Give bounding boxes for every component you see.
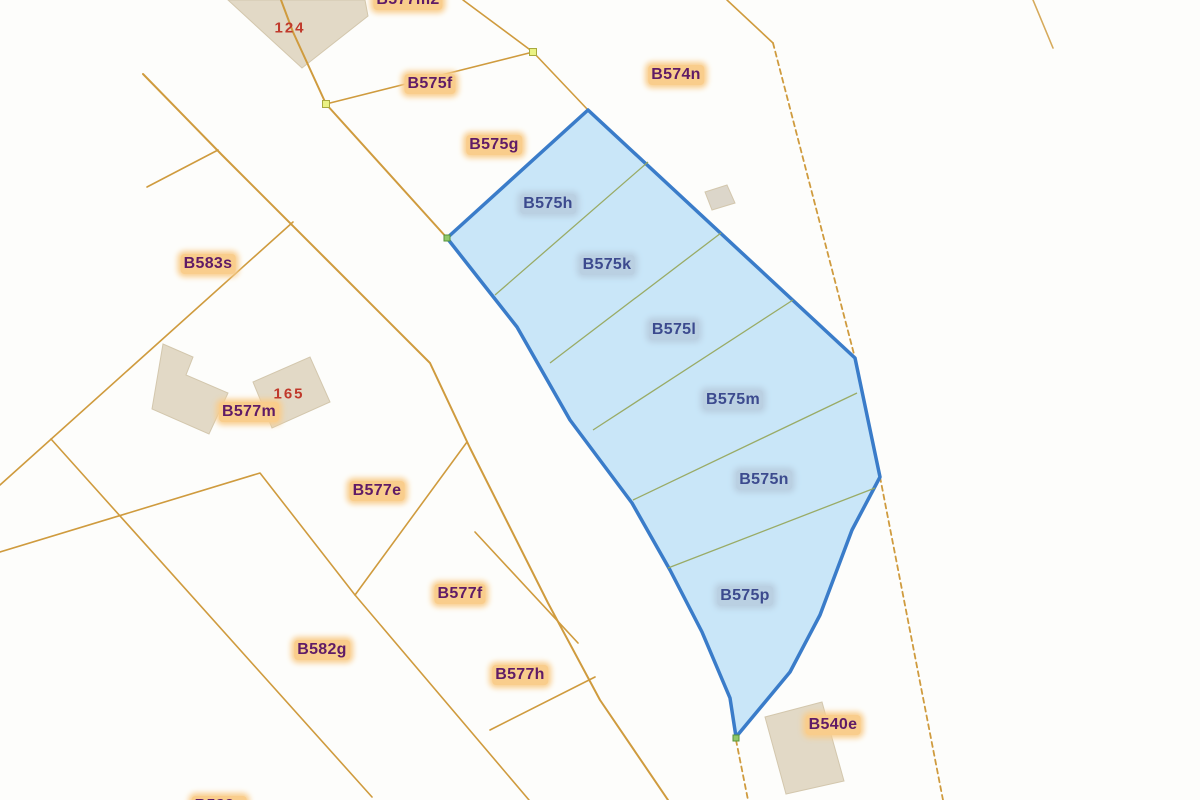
map-layer [0, 0, 1200, 800]
parcel-label-b577m2[interactable]: B577m2 [373, 0, 442, 10]
parcel-label-b583s[interactable]: B583s [181, 254, 236, 274]
parcel-label-b575m[interactable]: B575m [703, 390, 763, 410]
parcel-line-b577e-b577f [355, 442, 467, 595]
parcel-label-b575h[interactable]: B575h [520, 194, 576, 214]
vertex-marker-green [444, 235, 450, 241]
parcel-label-b575l[interactable]: B575l [649, 320, 699, 340]
parcel-label-b575f[interactable]: B575f [404, 74, 455, 94]
parcel-line-topleft-spur [147, 150, 218, 187]
cadastral-map-canvas[interactable]: B577m2 B575f B574n B575g B583s B577m B57… [0, 0, 1200, 800]
building-small-left [152, 344, 228, 434]
house-number-124: 124 [274, 20, 305, 37]
house-number-165: 165 [273, 386, 304, 403]
parcel-line-b582g-b577h [355, 595, 529, 800]
parcel-label-b577m[interactable]: B577m [219, 402, 279, 422]
road-dashed-line-lower-right [880, 477, 943, 800]
parcel-label-b577h[interactable]: B577h [492, 665, 548, 685]
parcel-line-b574n-right-solid [727, 0, 773, 43]
parcel-line-b582g-left [51, 439, 372, 797]
vertex-marker [530, 49, 537, 56]
parcel-label-b577e[interactable]: B577e [350, 481, 405, 501]
parcel-label-b574n[interactable]: B574n [648, 65, 704, 85]
parcel-label-b575n[interactable]: B575n [736, 470, 792, 490]
road-dashed-line-bottom [736, 740, 748, 800]
vertex-marker [323, 101, 330, 108]
parcel-label-b582g[interactable]: B582g [294, 640, 350, 660]
parcel-label-b577f[interactable]: B577f [434, 584, 485, 604]
parcel-line-b577m-b577e [0, 473, 355, 595]
parcel-label-b575p[interactable]: B575p [717, 586, 773, 606]
parcel-label-b582-partial[interactable]: B582e [192, 796, 247, 800]
parcel-line-b575f-top [463, 0, 533, 52]
parcel-label-b540e[interactable]: B540e [806, 715, 861, 735]
vertex-marker-green [733, 735, 739, 741]
building-small-b574n [705, 185, 735, 210]
parcel-line-b577f-b577h [475, 532, 578, 643]
parcel-line-top-right-fading [1033, 0, 1053, 48]
parcel-line-b575g-right [533, 52, 588, 110]
parcel-label-b575g[interactable]: B575g [466, 135, 522, 155]
parcel-label-b575k[interactable]: B575k [580, 255, 635, 275]
parcel-line-b583s-b577m [0, 222, 293, 485]
